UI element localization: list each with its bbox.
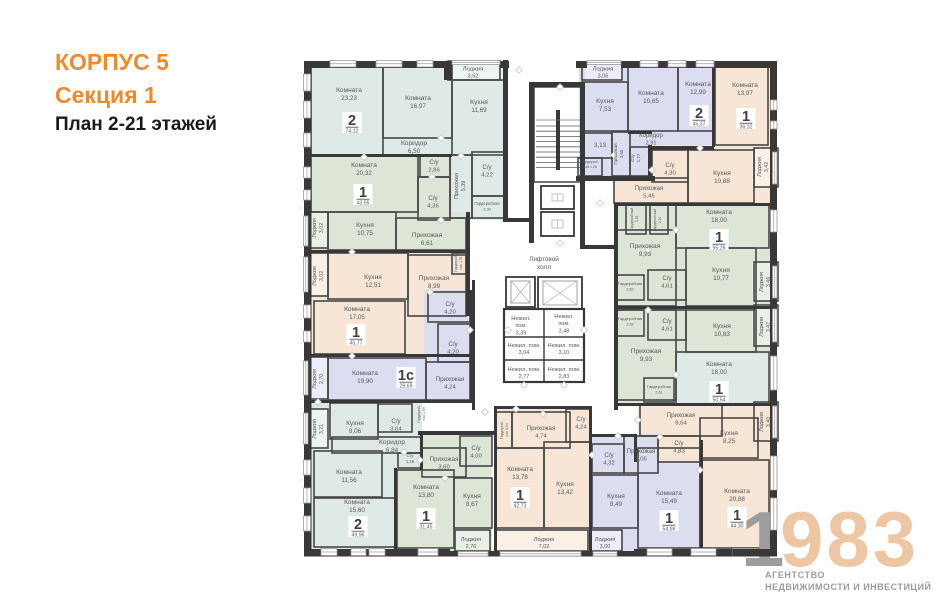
svg-text:Комната: Комната (507, 466, 533, 473)
svg-text:3,21: 3,21 (319, 424, 325, 434)
svg-text:С/у: С/у (604, 452, 614, 459)
svg-text:Гардеробный: Гардеробный (630, 208, 634, 230)
svg-text:Нежил.: Нежил. (511, 316, 531, 322)
svg-text:ная 3,04: ная 3,04 (505, 423, 509, 437)
svg-text:С/у: С/у (482, 164, 492, 171)
svg-text:36,32: 36,32 (740, 125, 753, 131)
svg-text:3,16: 3,16 (635, 216, 639, 223)
svg-text:11,56: 11,56 (341, 477, 357, 484)
svg-text:Комната: Комната (706, 209, 732, 216)
svg-text:Лифтовой: Лифтовой (529, 255, 559, 263)
svg-text:ной 1,26: ной 1,26 (583, 165, 597, 169)
svg-text:6,84: 6,84 (386, 447, 399, 454)
svg-text:Прихожая: Прихожая (631, 348, 662, 355)
svg-text:1,26: 1,26 (406, 459, 415, 464)
svg-text:ная 1,59: ная 1,59 (422, 407, 426, 421)
svg-text:пом.: пом. (558, 321, 570, 327)
svg-text:Лоджия: Лоджия (593, 67, 614, 73)
svg-text:Комната: Комната (336, 469, 362, 476)
svg-text:2,91: 2,91 (645, 140, 656, 146)
svg-text:2,86: 2,86 (428, 168, 440, 174)
svg-text:Комната: Комната (413, 484, 439, 491)
svg-text:Секция 1: Секция 1 (55, 82, 157, 108)
svg-text:1: 1 (352, 325, 360, 341)
svg-text:12,51: 12,51 (365, 282, 381, 289)
svg-text:Комната: Комната (344, 306, 370, 313)
svg-text:С/у: С/у (662, 275, 672, 282)
svg-text:1: 1 (715, 230, 723, 246)
svg-text:Прихожая: Прихожая (667, 412, 696, 419)
svg-text:54,86: 54,86 (663, 527, 676, 533)
svg-text:13,42: 13,42 (557, 489, 573, 496)
svg-text:43,55: 43,55 (357, 201, 370, 207)
svg-text:Прихожая: Прихожая (436, 376, 465, 383)
svg-text:Прихожая: Прихожая (454, 173, 460, 199)
svg-text:холл: холл (537, 264, 551, 271)
svg-text:Лоджия: Лоджия (534, 537, 555, 543)
svg-text:Комната: Комната (351, 162, 377, 169)
svg-text:8,67: 8,67 (466, 501, 479, 508)
svg-text:45,77: 45,77 (350, 341, 363, 347)
svg-text:4,22: 4,22 (481, 173, 492, 179)
svg-text:3,47: 3,47 (766, 322, 772, 332)
svg-text:4,00: 4,00 (470, 454, 482, 460)
svg-text:Прихожая: Прихожая (635, 185, 664, 192)
svg-text:С/у: С/у (576, 416, 586, 423)
svg-text:20,32: 20,32 (356, 170, 372, 177)
svg-text:11,69: 11,69 (471, 107, 487, 114)
svg-text:10,65: 10,65 (643, 98, 659, 105)
svg-text:ная 1,51: ная 1,51 (459, 256, 463, 270)
svg-text:13,80: 13,80 (418, 492, 434, 499)
svg-text:5,46: 5,46 (643, 194, 655, 200)
svg-text:Лоджия: Лоджия (461, 537, 482, 543)
svg-text:Комната: Комната (732, 82, 758, 89)
svg-text:Комната: Комната (638, 90, 664, 97)
svg-text:1: 1 (733, 508, 741, 524)
svg-text:7,02: 7,02 (539, 544, 550, 550)
svg-text:Кухня: Кухня (712, 267, 730, 274)
svg-text:Гардеробная: Гардеробная (618, 316, 642, 321)
svg-text:Кухня: Кухня (346, 420, 364, 427)
svg-text:3,60: 3,60 (438, 465, 450, 471)
svg-text:4,24: 4,24 (444, 385, 456, 391)
svg-text:Гардероб-: Гардероб- (581, 160, 600, 164)
svg-text:С/у: С/у (471, 445, 481, 452)
svg-text:3,04: 3,04 (519, 350, 530, 356)
svg-text:6,50: 6,50 (408, 148, 421, 155)
svg-text:2,77: 2,77 (519, 374, 530, 380)
svg-text:С/у: С/у (665, 162, 675, 169)
svg-text:74,12: 74,12 (346, 129, 359, 135)
svg-text:3,39: 3,39 (516, 330, 527, 336)
svg-text:Гардеробная: Гардеробная (474, 201, 499, 206)
svg-text:Нежил. пом.: Нежил. пом. (547, 367, 580, 373)
svg-text:9,93: 9,93 (639, 251, 652, 258)
svg-text:2,61: 2,61 (655, 390, 662, 394)
svg-text:Комната: Комната (405, 95, 431, 102)
svg-text:9,93: 9,93 (640, 356, 653, 363)
svg-text:Прихожая: Прихожая (412, 232, 443, 239)
svg-text:1: 1 (741, 495, 784, 583)
svg-text:КОРПУС 5: КОРПУС 5 (55, 49, 169, 75)
svg-text:Гардеробный: Гардеробный (653, 209, 657, 231)
svg-text:1: 1 (715, 382, 723, 398)
svg-text:17,05: 17,05 (349, 314, 365, 321)
svg-text:2,62: 2,62 (626, 322, 633, 326)
svg-text:1: 1 (516, 488, 524, 504)
svg-text:Прихожая: Прихожая (627, 448, 656, 455)
svg-text:С/у: С/у (674, 440, 684, 447)
svg-text:Комната: Комната (352, 370, 378, 377)
svg-text:Нежил. пом.: Нежил. пом. (507, 343, 540, 349)
svg-text:3,46: 3,46 (766, 277, 772, 287)
svg-text:3,40: 3,40 (766, 417, 772, 427)
svg-text:29,69: 29,69 (400, 384, 413, 390)
svg-text:1: 1 (665, 511, 673, 527)
svg-text:5,39: 5,39 (461, 181, 467, 191)
svg-text:Прихожая: Прихожая (613, 143, 618, 165)
svg-text:Лоджия: Лоджия (463, 67, 484, 73)
svg-text:Коридор: Коридор (401, 140, 427, 147)
svg-text:4,61: 4,61 (661, 284, 672, 290)
svg-text:1: 1 (422, 509, 430, 525)
svg-text:4,83: 4,83 (673, 449, 685, 455)
svg-text:Лоджия: Лоджия (312, 369, 318, 389)
svg-text:8,99: 8,99 (428, 283, 441, 290)
svg-text:Прихожая: Прихожая (419, 275, 450, 282)
svg-text:13,78: 13,78 (512, 474, 528, 481)
svg-text:Прихожая: Прихожая (430, 456, 459, 463)
svg-text:Гардеробная: Гардеробная (618, 281, 642, 286)
svg-text:Лоджия: Лоджия (312, 218, 318, 238)
svg-text:Нежил. пом.: Нежил. пом. (507, 367, 540, 373)
svg-text:42,73: 42,73 (514, 504, 527, 510)
svg-text:23,23: 23,23 (341, 95, 357, 102)
svg-text:3,42: 3,42 (764, 162, 770, 172)
svg-text:Кухня: Кухня (356, 222, 374, 229)
svg-text:Лоджия: Лоджия (312, 419, 318, 439)
svg-text:2,82: 2,82 (626, 287, 633, 291)
svg-text:31,45: 31,45 (420, 525, 433, 531)
svg-text:2: 2 (354, 517, 362, 533)
svg-text:10,77: 10,77 (713, 275, 729, 282)
svg-text:Лоджия: Лоджия (759, 272, 765, 292)
svg-text:Гардероб-: Гардероб- (417, 404, 421, 423)
svg-text:НЕДВИЖИМОСТИ И ИНВЕСТИЦИЙ: НЕДВИЖИМОСТИ И ИНВЕСТИЦИЙ (765, 581, 931, 592)
svg-text:18,00: 18,00 (711, 217, 727, 224)
svg-text:3,02: 3,02 (319, 271, 325, 281)
svg-text:Комната: Комната (724, 488, 750, 495)
svg-text:50,54: 50,54 (713, 398, 726, 404)
svg-text:10,88: 10,88 (714, 178, 730, 185)
svg-text:Гардероб-: Гардероб- (500, 420, 504, 439)
svg-text:1,77: 1,77 (636, 153, 641, 162)
svg-text:3,10: 3,10 (559, 350, 570, 356)
svg-text:Кухня: Кухня (364, 274, 382, 281)
svg-text:18,00: 18,00 (711, 369, 727, 376)
svg-text:Кухня: Кухня (470, 99, 488, 106)
svg-text:49,96: 49,96 (352, 533, 365, 539)
svg-text:Комната: Комната (685, 81, 711, 88)
svg-text:2: 2 (348, 113, 356, 129)
svg-text:С/у: С/у (445, 301, 455, 308)
svg-text:Лоджия: Лоджия (759, 412, 765, 432)
svg-text:Прихожая: Прихожая (630, 243, 661, 250)
svg-text:Комната: Комната (706, 361, 732, 368)
svg-text:10,75: 10,75 (357, 230, 373, 237)
svg-text:С/у: С/у (428, 195, 438, 202)
svg-text:8,06: 8,06 (349, 428, 362, 435)
svg-text:Кухня: Кухня (713, 170, 731, 177)
svg-text:3,64: 3,64 (390, 427, 402, 433)
svg-text:Лоджия: Лоджия (595, 537, 616, 543)
svg-text:4,61: 4,61 (661, 327, 672, 333)
svg-text:С/у: С/у (407, 453, 415, 458)
svg-text:2,76: 2,76 (466, 544, 477, 550)
svg-text:Лоджия: Лоджия (312, 266, 318, 286)
svg-text:Комната: Комната (656, 490, 682, 497)
svg-text:4,36: 4,36 (427, 204, 439, 210)
svg-text:4,32: 4,32 (603, 461, 614, 467)
svg-text:4,20: 4,20 (444, 310, 456, 316)
svg-text:Кухня: Кухня (596, 98, 614, 105)
svg-text:1: 1 (359, 185, 367, 201)
svg-text:пом.: пом. (515, 323, 527, 329)
svg-text:7,53: 7,53 (599, 106, 612, 113)
svg-text:Комната: Комната (336, 87, 362, 94)
svg-text:Кухня: Кухня (720, 430, 738, 437)
svg-text:13,97: 13,97 (737, 90, 753, 97)
svg-text:8,25: 8,25 (723, 438, 736, 445)
svg-text:Кухня: Кухня (463, 493, 481, 500)
svg-text:8,64: 8,64 (675, 421, 687, 427)
svg-text:2: 2 (695, 106, 703, 122)
svg-text:3,13: 3,13 (594, 142, 607, 149)
svg-text:План 2-21 этажей: План 2-21 этажей (55, 114, 217, 135)
svg-text:Нежил. пом.: Нежил. пом. (547, 343, 580, 349)
svg-text:10,83: 10,83 (714, 331, 730, 338)
svg-text:15,49: 15,49 (661, 498, 677, 505)
svg-text:Коридор: Коридор (639, 133, 663, 139)
svg-text:12,99: 12,99 (690, 89, 706, 96)
svg-text:Гардеробная: Гардеробная (647, 384, 671, 389)
svg-text:С/у: С/у (391, 418, 401, 425)
svg-text:6,61: 6,61 (421, 240, 434, 247)
svg-text:Лоджия: Лоджия (759, 317, 765, 337)
svg-text:Кухня: Кухня (713, 323, 731, 330)
svg-text:19,90: 19,90 (357, 378, 373, 385)
svg-text:1: 1 (742, 109, 750, 125)
svg-text:С/у: С/у (662, 318, 672, 325)
svg-text:Прихожая: Прихожая (527, 425, 556, 432)
svg-text:Лоджия: Лоджия (757, 157, 763, 177)
svg-text:3,00: 3,00 (600, 544, 611, 550)
svg-text:2,30: 2,30 (483, 207, 491, 212)
svg-text:Кухня: Кухня (556, 481, 574, 488)
svg-text:3,48: 3,48 (559, 328, 570, 334)
svg-text:Коридор: Коридор (379, 439, 405, 446)
svg-text:3,06: 3,06 (598, 74, 609, 80)
svg-text:4,74: 4,74 (535, 434, 547, 440)
svg-text:С/у: С/у (448, 341, 458, 348)
svg-text:Кухня: Кухня (607, 493, 625, 500)
svg-text:Нежил.: Нежил. (554, 314, 574, 320)
svg-text:2,24: 2,24 (658, 217, 662, 224)
svg-text:16,97: 16,97 (410, 103, 426, 110)
svg-text:4,30: 4,30 (664, 171, 676, 177)
svg-text:5,06: 5,06 (635, 457, 647, 463)
svg-text:Комната: Комната (344, 499, 370, 506)
svg-text:8,49: 8,49 (610, 501, 623, 508)
svg-text:Гардероб-: Гардероб- (454, 253, 458, 272)
svg-text:С/у: С/у (429, 159, 439, 166)
svg-text:2,83: 2,83 (559, 374, 570, 380)
svg-text:1с: 1с (398, 368, 414, 384)
svg-text:4,20: 4,20 (447, 350, 459, 356)
svg-text:3,52: 3,52 (468, 74, 479, 80)
svg-text:55,26: 55,26 (713, 246, 726, 252)
svg-text:3,60: 3,60 (619, 149, 624, 158)
svg-text:45,37: 45,37 (693, 122, 706, 128)
svg-text:3,02: 3,02 (319, 223, 325, 233)
svg-text:15,60: 15,60 (349, 507, 365, 514)
svg-text:4,24: 4,24 (575, 425, 587, 431)
svg-text:2,70: 2,70 (319, 374, 325, 384)
